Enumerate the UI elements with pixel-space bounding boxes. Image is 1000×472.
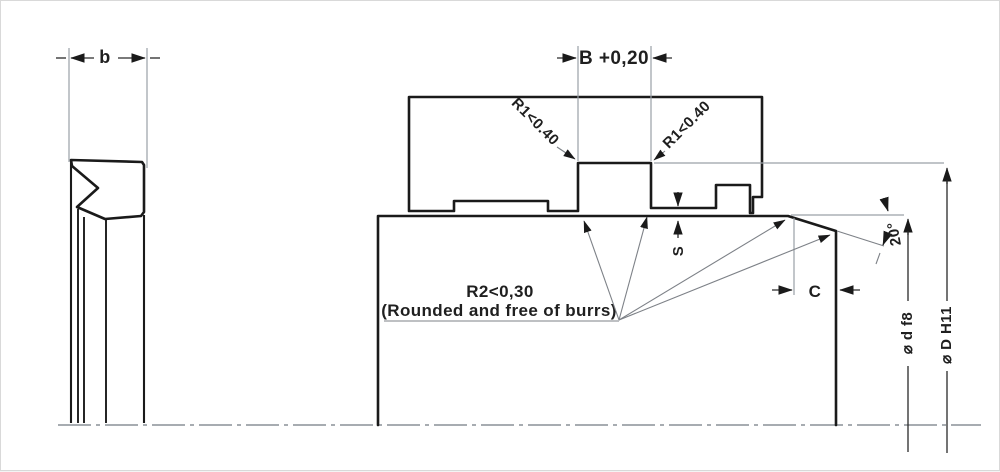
angle-overhang-dash [876, 253, 880, 264]
seal-installation-drawing: b B +0,20 R1<0.40 R1<0.40 S C [1, 1, 1000, 472]
radius2-leader-chamfer-start [619, 220, 785, 320]
rod-diameter-label: ⌀ d f8 [899, 312, 916, 354]
radius1-right-label: R1<0.40 [660, 98, 714, 152]
chamfer-angle-label: 20° [884, 221, 905, 247]
radius1-left-leader [557, 147, 575, 159]
groove-width-label: B +0,20 [579, 48, 649, 69]
chamfer-length-label: C [809, 282, 822, 301]
groove-section-view: B +0,20 R1<0.40 R1<0.40 S C 20° R2<0,30 … [378, 46, 955, 453]
seal-profile-head [71, 160, 144, 219]
angle-arrow-upper [884, 198, 888, 211]
seal-cross-section-view: b [56, 47, 160, 423]
lip-gap-label: S [670, 246, 687, 256]
radius2-note-line1: R2<0,30 [466, 282, 534, 301]
radius1-right-leader [654, 151, 665, 160]
radius2-leader-groove-right [619, 217, 647, 320]
radius1-left-label: R1<0.40 [508, 95, 562, 149]
drawing-sheet: b B +0,20 R1<0.40 R1<0.40 S C [0, 0, 1000, 471]
b-dimension-label: b [99, 47, 110, 67]
radius2-leader-chamfer-end [619, 235, 830, 320]
bore-diameter-label: ⌀ D H11 [938, 306, 955, 364]
chamfer-extension-line [837, 231, 884, 246]
radius2-note-line2: (Rounded and free of burrs) [381, 301, 617, 320]
